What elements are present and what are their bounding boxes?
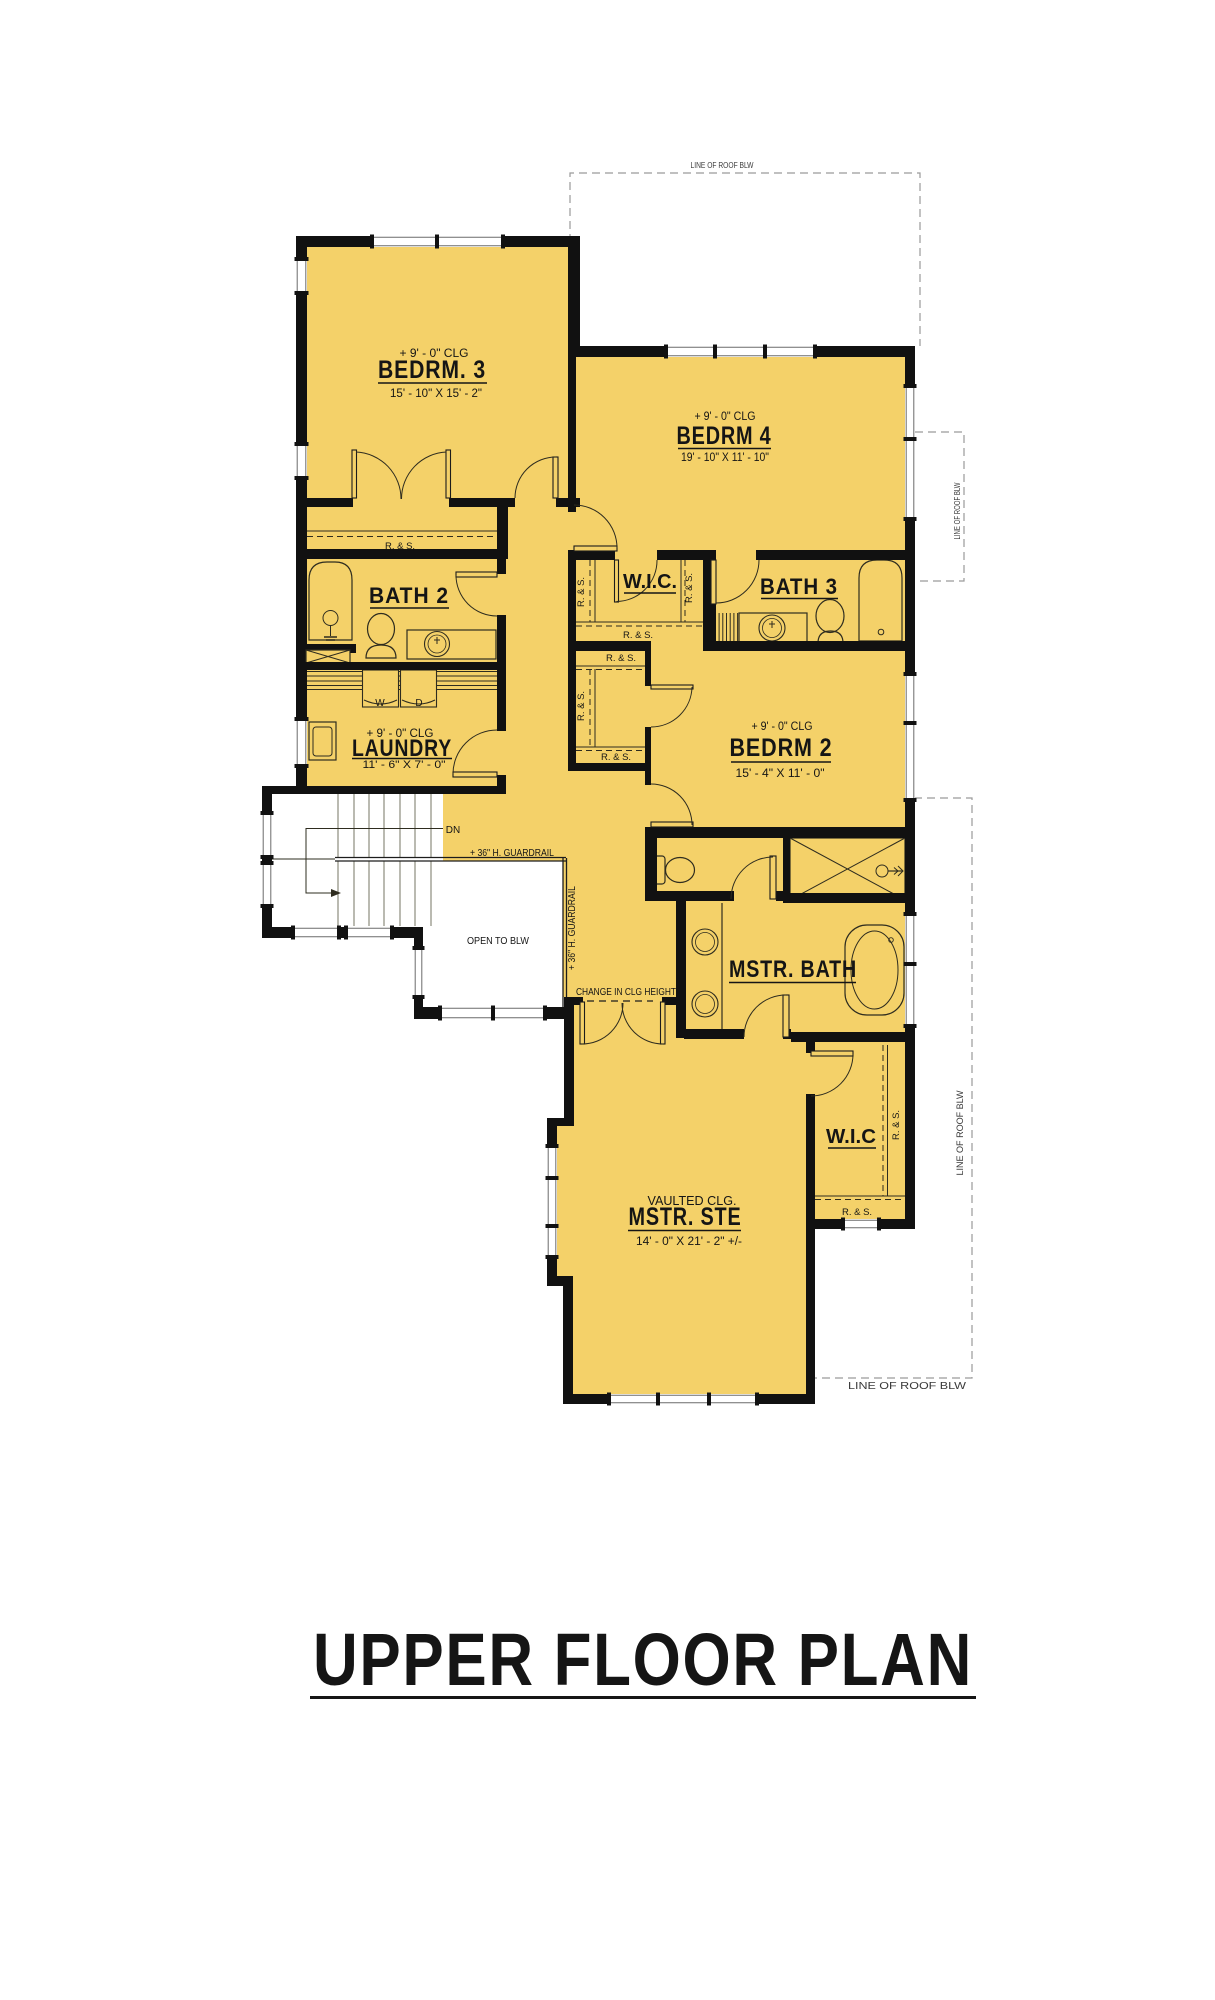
svg-text:R. & S.: R. & S. (601, 752, 631, 763)
svg-text:15' - 4" X 11' - 0": 15' - 4" X 11' - 0" (736, 768, 825, 780)
svg-text:LINE OF ROOF BLW: LINE OF ROOF BLW (848, 1380, 966, 1392)
svg-text:UPPER FLOOR PLAN: UPPER FLOOR PLAN (313, 1618, 973, 1701)
svg-text:+ 36" H. GUARDRAIL: + 36" H. GUARDRAIL (567, 886, 578, 970)
svg-text:D: D (415, 698, 422, 709)
svg-text:W: W (375, 698, 385, 709)
svg-text:11' - 6" X 7' - 0": 11' - 6" X 7' - 0" (363, 759, 446, 771)
svg-text:R. & S.: R. & S. (891, 1110, 902, 1140)
svg-text:R. & S.: R. & S. (606, 653, 636, 664)
svg-text:BATH 2: BATH 2 (369, 583, 449, 608)
svg-text:W.I.C: W.I.C (826, 1126, 876, 1148)
svg-text:BATH 3: BATH 3 (760, 574, 838, 599)
svg-text:CHANGE IN CLG HEIGHT: CHANGE IN CLG HEIGHT (576, 987, 676, 998)
svg-text:15' - 10" X 15' - 2": 15' - 10" X 15' - 2" (390, 388, 482, 400)
svg-text:19' - 10" X 11' - 10": 19' - 10" X 11' - 10" (681, 452, 769, 464)
svg-text:DN: DN (446, 825, 460, 836)
svg-text:BEDRM 4: BEDRM 4 (677, 422, 772, 450)
svg-text:14' - 0" X 21' - 2" +/-: 14' - 0" X 21' - 2" +/- (636, 1236, 742, 1248)
svg-text:BEDRM. 3: BEDRM. 3 (378, 356, 486, 384)
svg-text:MSTR. STE: MSTR. STE (629, 1203, 742, 1231)
svg-text:LINE OF ROOF BLW: LINE OF ROOF BLW (691, 161, 754, 170)
svg-text:R. & S.: R. & S. (385, 541, 415, 552)
svg-text:R. & S.: R. & S. (684, 573, 695, 603)
svg-text:+ 9' - 0" CLG: + 9' - 0" CLG (752, 721, 813, 733)
svg-text:R. & S.: R. & S. (842, 1207, 872, 1218)
svg-text:LINE OF ROOF BLW: LINE OF ROOF BLW (955, 1090, 966, 1175)
svg-text:R. & S.: R. & S. (623, 630, 653, 641)
svg-text:BEDRM 2: BEDRM 2 (730, 734, 833, 762)
svg-text:R. & S.: R. & S. (576, 691, 587, 721)
svg-text:MSTR. BATH: MSTR. BATH (729, 956, 857, 983)
svg-text:R. & S.: R. & S. (576, 577, 587, 607)
svg-text:W.I.C.: W.I.C. (623, 571, 677, 593)
svg-text:LINE OF ROOF BLW: LINE OF ROOF BLW (953, 482, 962, 539)
svg-text:+ 36" H. GUARDRAIL: + 36" H. GUARDRAIL (470, 848, 554, 859)
svg-text:OPEN TO BLW: OPEN TO BLW (467, 935, 529, 947)
